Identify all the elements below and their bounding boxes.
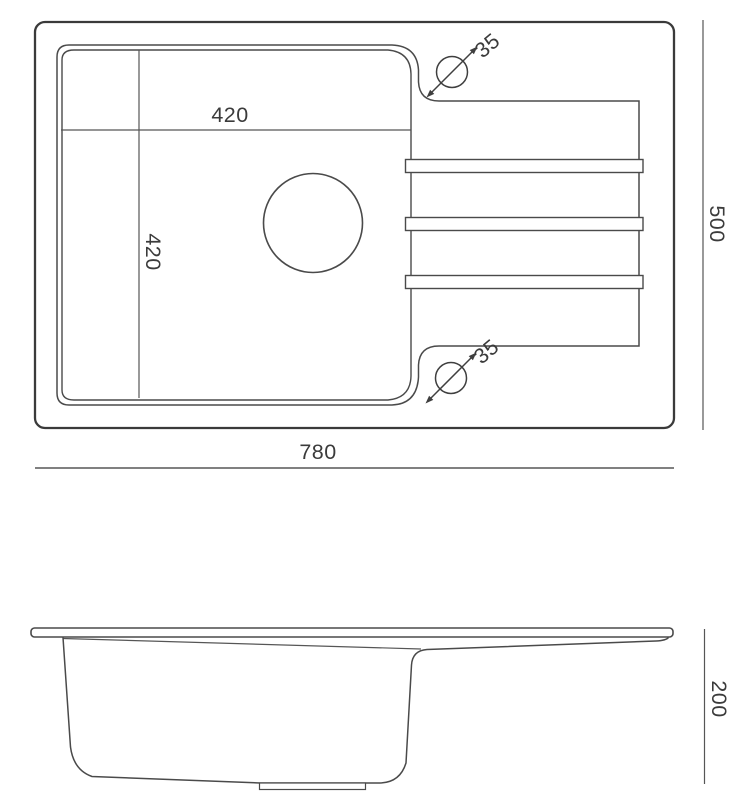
drainboard-ribs [406,160,644,289]
bowl-width-dimension: 420 [61,103,411,130]
side-view-bowl-profile [63,638,669,784]
tap-hole-bottom-callout: 35 [426,334,504,403]
bowl-depth-dimension: 420 [139,50,165,398]
side-view: 200 [31,628,731,790]
tap-hole-bottom-diameter-label: 35 [469,334,504,368]
drainboard-rib [406,276,644,289]
sink-technical-drawing-page: 420 420 35 35 [0,0,755,800]
top-view: 420 420 35 35 [35,20,729,468]
drain-hole [264,174,363,273]
bowl-width-dimension-label: 420 [211,103,248,127]
side-view-rim [31,628,673,637]
tap-hole-top-callout: 35 [427,28,505,97]
drainboard-rib [406,218,644,231]
overall-depth-dimension: 500 [703,20,729,430]
technical-drawing-canvas: 420 420 35 35 [0,0,755,800]
bowl-depth-dimension-label: 420 [141,233,165,270]
drainboard-rib [406,160,644,173]
overall-depth-dimension-label: 500 [705,205,729,242]
overall-height-dimension-label: 200 [707,680,731,717]
overall-height-dimension: 200 [705,629,732,784]
side-view-back-edge-line [63,639,421,650]
tap-hole-top-diameter-label: 35 [470,28,505,62]
side-view-drain-boss [260,783,366,790]
overall-width-dimension: 780 [35,440,674,468]
overall-width-dimension-label: 780 [299,440,336,464]
